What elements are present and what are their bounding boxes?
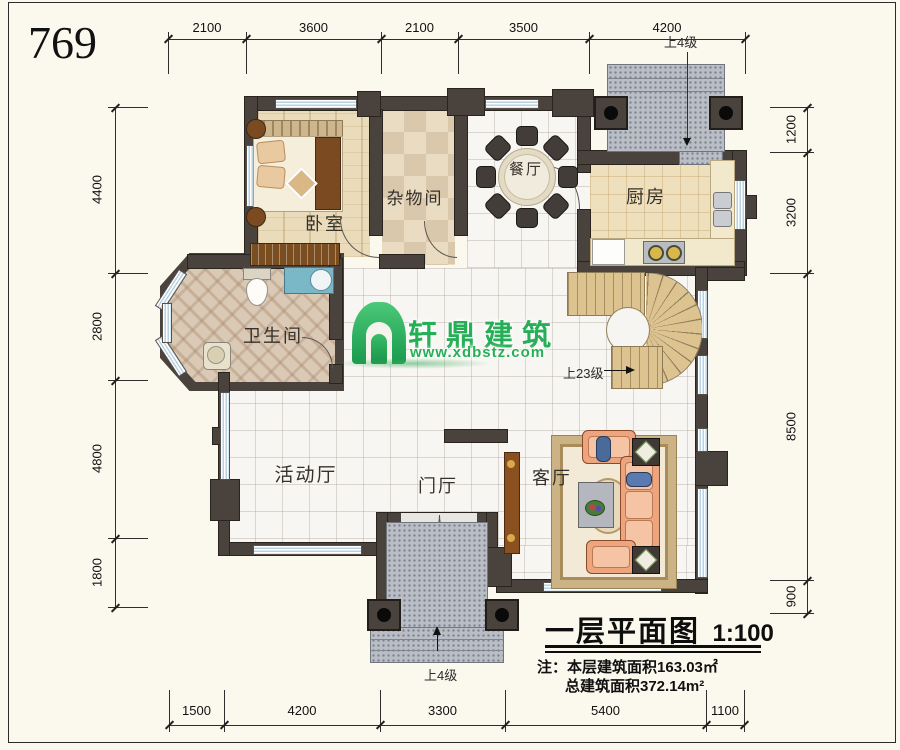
dim-label: 1100 xyxy=(695,703,755,718)
refrigerator xyxy=(592,239,625,265)
stair-flight-bottom xyxy=(612,347,662,388)
top-porch-arrow-icon xyxy=(683,138,691,146)
right-pillar-block xyxy=(696,452,727,485)
wall-storage-dining xyxy=(455,110,467,235)
bed-pillow-1 xyxy=(256,140,286,165)
bed-blanket xyxy=(315,137,341,210)
stairs-label: 上23级 xyxy=(563,363,603,382)
person-right xyxy=(626,472,652,487)
tv-cabinet-knob-bottom xyxy=(507,534,515,542)
bottom-porch-steps-label: 上4级 xyxy=(424,665,457,684)
bottom-porch-floor xyxy=(387,523,487,628)
top-porch-step1 xyxy=(608,78,724,79)
plant-icon xyxy=(635,549,658,572)
title-block: 一层平面图 1:100 xyxy=(545,608,775,650)
drawing-title: 一层平面图 xyxy=(545,616,700,648)
dim-label: 8500 xyxy=(784,396,799,456)
dim-label: 1500 xyxy=(167,703,227,718)
stove-burner-1 xyxy=(648,245,664,261)
hall-left-corner-block xyxy=(211,480,239,520)
dim-label: 4400 xyxy=(90,160,105,220)
hall-left-window-icon xyxy=(220,392,230,480)
column-core xyxy=(495,608,509,622)
corner-block-3 xyxy=(553,90,593,116)
bottom-porch-arrow-line xyxy=(437,633,438,651)
dim-label: 1800 xyxy=(90,542,105,602)
washer-drum xyxy=(310,269,332,291)
drawing-scale: 1:100 xyxy=(712,620,773,647)
bathroom-label: 卫生间 xyxy=(233,322,313,348)
living-right-window2-icon xyxy=(697,488,708,578)
dim-label: 3200 xyxy=(784,182,799,242)
stairs-arrow-line xyxy=(604,370,626,371)
bottom-porch-column-right xyxy=(485,599,519,631)
dim-label: 4200 xyxy=(637,20,697,35)
top-porch-column-right xyxy=(709,96,743,130)
column-core xyxy=(377,608,391,622)
column-core xyxy=(719,106,733,120)
dim-label: 1200 xyxy=(784,99,799,159)
title-underline-2 xyxy=(545,651,761,653)
foyer-label: 门厅 xyxy=(398,472,478,498)
dim-label: 2100 xyxy=(390,20,450,35)
dim-label: 2800 xyxy=(90,296,105,356)
column-core xyxy=(604,106,618,120)
dim-label: 5400 xyxy=(576,703,636,718)
armchair-cushion xyxy=(592,546,630,568)
watermark-url: www.xdbstz.com xyxy=(410,344,545,361)
nightstand-top xyxy=(246,119,266,139)
wall-foyer-living-stub xyxy=(445,430,507,442)
plant-icon xyxy=(635,441,658,464)
dim-line xyxy=(115,107,116,607)
note1-text: 本层建筑面积163.03㎡ xyxy=(567,659,718,676)
wall-bedroom-storage xyxy=(370,110,382,235)
coffee-table-flowers xyxy=(585,500,605,516)
dim-label: 900 xyxy=(784,566,799,626)
kitchen-sink-2 xyxy=(713,210,732,227)
floor-plan-sheet: 769 xyxy=(0,0,900,750)
dim-line xyxy=(169,725,744,726)
dining-chair xyxy=(516,208,538,228)
top-porch-leader-line xyxy=(687,52,688,140)
note-line-2: 总建筑面积372.14m² xyxy=(565,675,704,696)
dining-chair xyxy=(516,126,538,146)
bottom-porch-column-left xyxy=(367,599,401,631)
dim-label: 3300 xyxy=(413,703,473,718)
kitchen-label: 厨房 xyxy=(606,183,686,209)
dining-chair xyxy=(476,166,496,188)
wall-dining-kitchen-lower xyxy=(578,210,590,268)
sheet-number: 769 xyxy=(28,16,97,69)
top-porch-step2 xyxy=(608,91,724,92)
dim-label: 3600 xyxy=(284,20,344,35)
note-label: 注： xyxy=(537,659,567,676)
top-porch-column-left xyxy=(594,96,628,130)
dining-label: 餐厅 xyxy=(496,158,556,179)
title-underline-1 xyxy=(545,645,761,648)
bay-window-left-icon xyxy=(162,303,172,343)
corner-block-2 xyxy=(448,89,484,115)
activity-label: 活动厅 xyxy=(266,460,346,487)
bedroom-label: 卧室 xyxy=(285,210,365,236)
storage-label: 杂物间 xyxy=(375,184,455,209)
dim-label: 4800 xyxy=(90,429,105,489)
wardrobe xyxy=(250,243,340,266)
living-label: 客厅 xyxy=(512,464,592,490)
floor-drain-circle xyxy=(207,346,225,364)
bed-pillow-2 xyxy=(256,165,286,189)
kitchen-right-window-icon xyxy=(734,180,746,230)
dim-label: 2100 xyxy=(177,20,237,35)
side-table-bottom xyxy=(632,546,660,574)
wall-storage-bottom xyxy=(380,255,424,268)
hall-bottom-window-icon xyxy=(253,545,362,555)
dim-label: 4200 xyxy=(272,703,332,718)
watermark-logo-icon xyxy=(352,302,406,364)
living-right-window1-icon xyxy=(697,428,708,452)
bedroom-top-window-icon xyxy=(275,99,357,109)
corner-block-1 xyxy=(358,92,380,116)
sofa-right-cushion2 xyxy=(625,491,653,519)
dining-top-window-icon xyxy=(485,99,539,109)
nightstand-bottom xyxy=(246,207,266,227)
dim-line xyxy=(807,107,808,613)
hall-right-window2-icon xyxy=(697,355,708,395)
stove-burner-2 xyxy=(666,245,682,261)
side-table-top xyxy=(632,438,660,466)
note-line-1: 注：本层建筑面积163.03㎡ xyxy=(537,656,718,677)
kitchen-sink-1 xyxy=(713,192,732,209)
kitchen-chimney-block xyxy=(746,196,756,218)
note2-text: 总建筑面积372.14m² xyxy=(565,678,704,695)
dim-label: 3500 xyxy=(494,20,554,35)
person-top xyxy=(596,436,611,462)
stairs-arrow-icon xyxy=(626,366,635,374)
dining-chair xyxy=(558,166,578,188)
